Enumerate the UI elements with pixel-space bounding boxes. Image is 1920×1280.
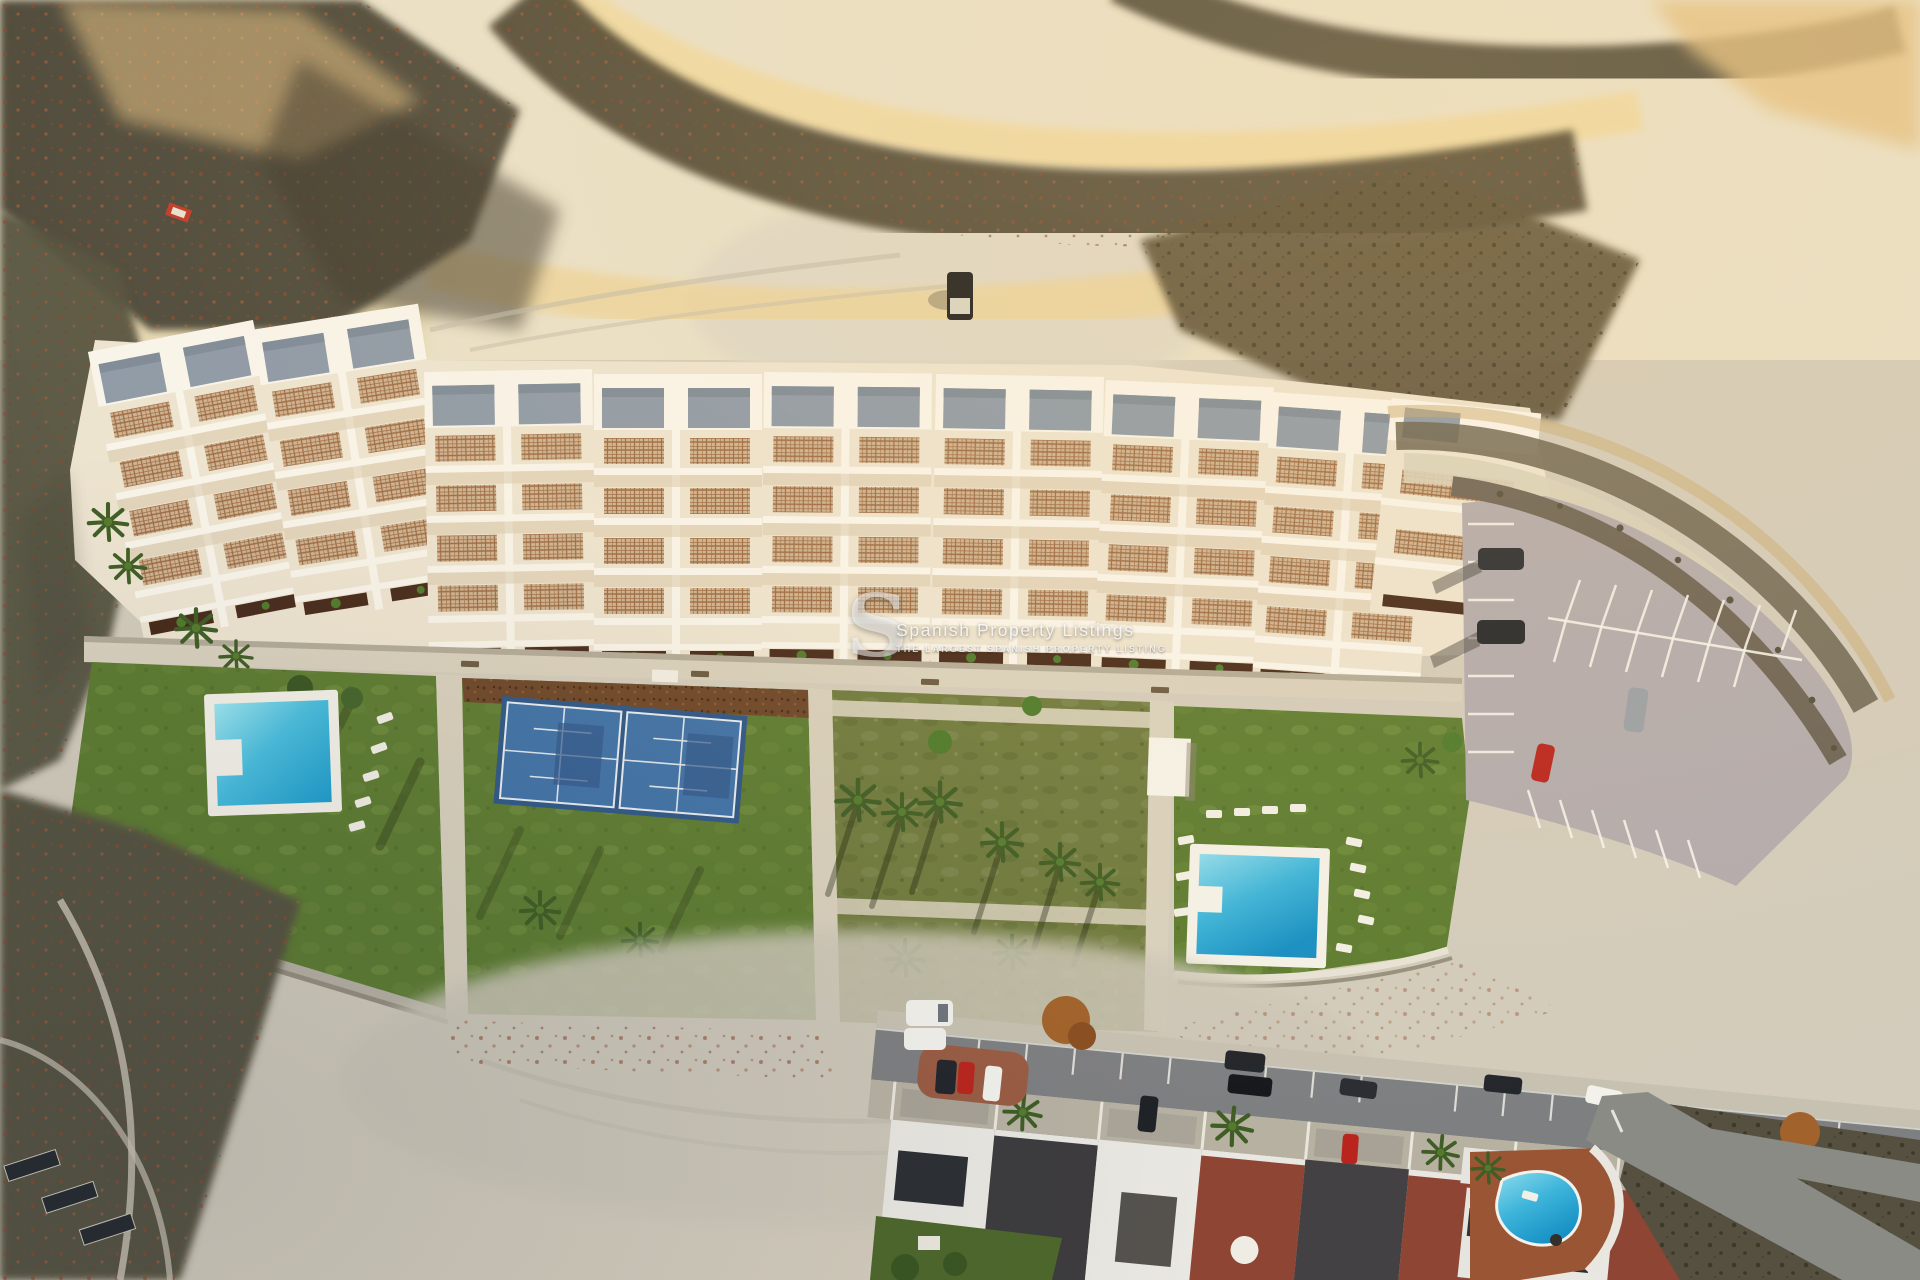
aerial-render-scene: S Spanish Property Listings THE LARGEST … [0, 0, 1920, 1280]
aerial-photo [0, 0, 1920, 1280]
lighting-overlay [0, 0, 1920, 1280]
